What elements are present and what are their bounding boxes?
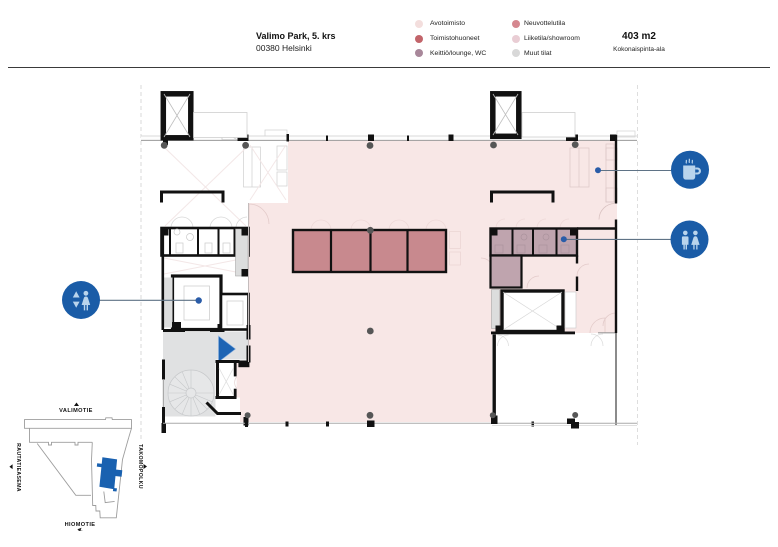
svg-text:HIOMOTIE: HIOMOTIE	[65, 522, 96, 528]
svg-text:VALIMOTIE: VALIMOTIE	[59, 408, 93, 414]
svg-text:RAUTATIEASEMA: RAUTATIEASEMA	[15, 443, 21, 492]
svg-text:TAKOMOPOLKU: TAKOMOPOLKU	[137, 444, 143, 489]
